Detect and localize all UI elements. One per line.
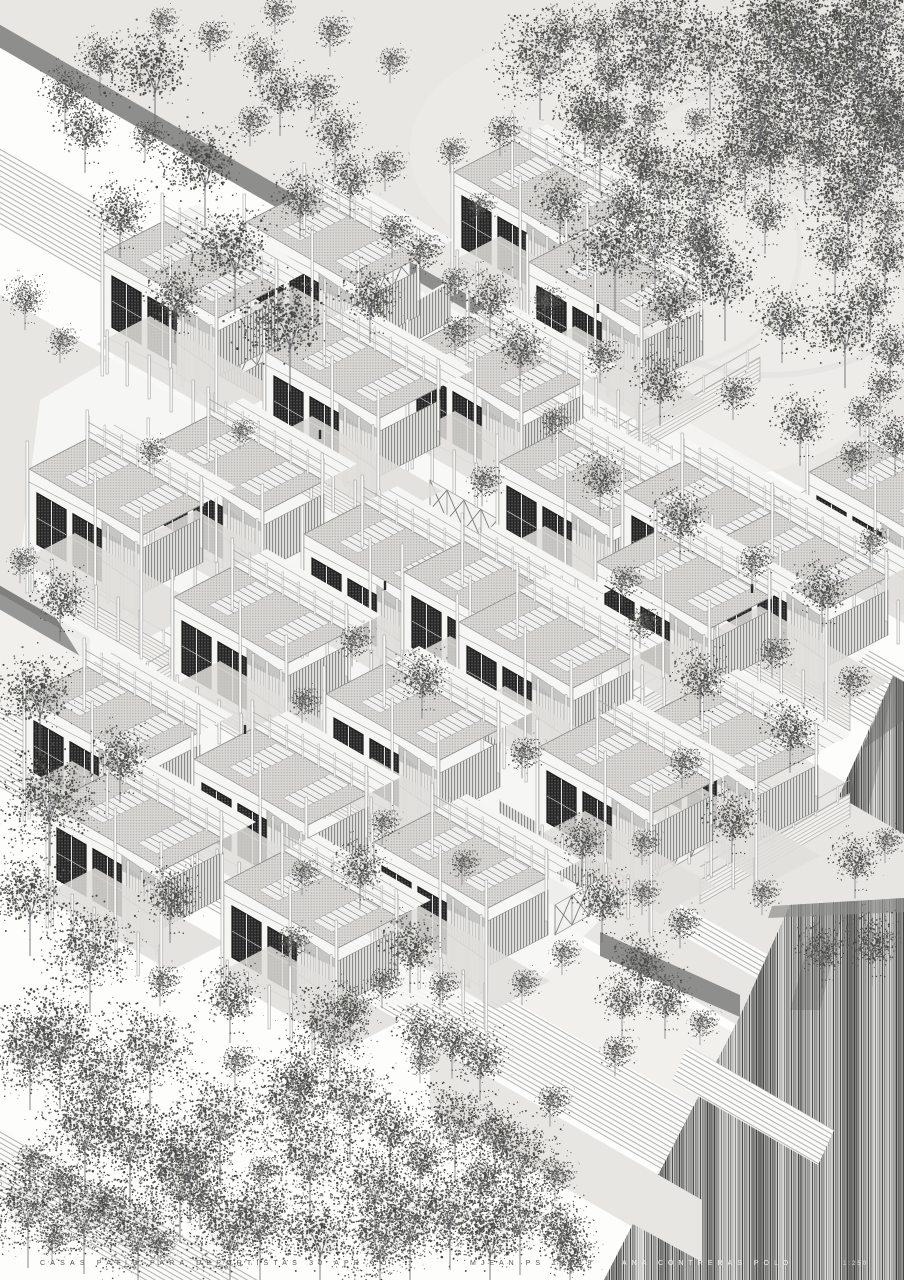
svg-text:CASAS PATIO PARA DEPORTISTAS 3: CASAS PATIO PARA DEPORTISTAS 30 APR YO: [40, 1260, 392, 1267]
svg-text:ANA CONTRERAS POLO: ANA CONTRERAS POLO: [622, 1260, 793, 1267]
svg-text:1:250: 1:250: [843, 1261, 868, 1267]
svg-text:MJEAN PS 16019: MJEAN PS 16019: [470, 1260, 596, 1267]
